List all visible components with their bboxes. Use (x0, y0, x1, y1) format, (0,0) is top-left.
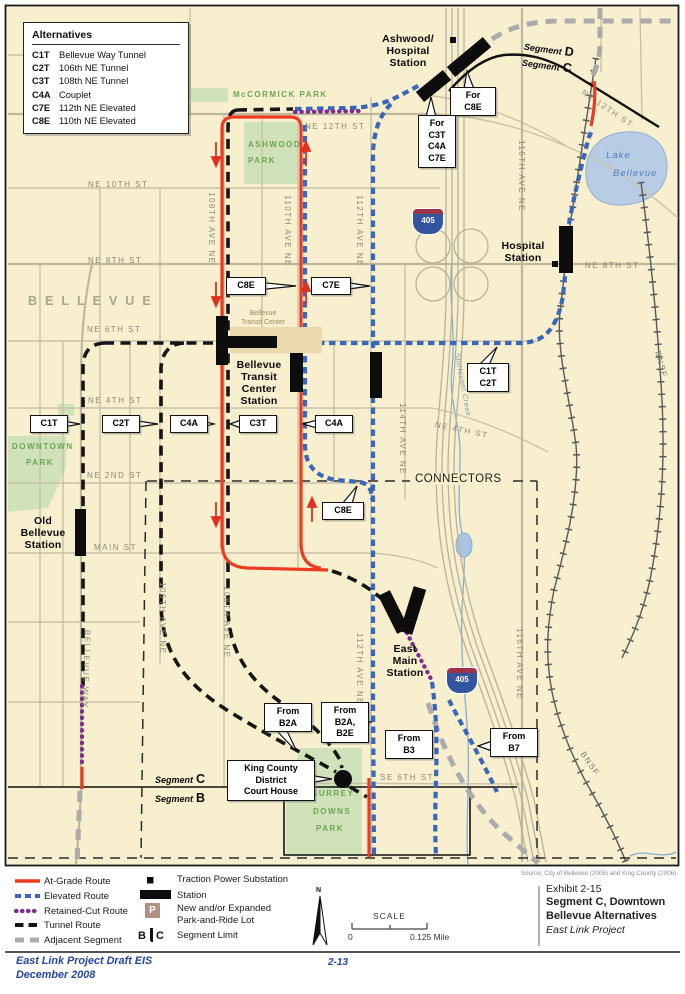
hospital-station-label: Hospital Station (494, 240, 552, 264)
park-and-ride-icon: P (145, 903, 160, 918)
callout-line: B7 (494, 743, 534, 755)
north-arrow (313, 896, 327, 945)
alt-code: C8E (32, 116, 59, 126)
label-line: East (382, 643, 428, 655)
alt-name: 110th NE Elevated (59, 116, 136, 126)
connectors-label: CONNECTORS (413, 473, 504, 485)
street-label-main: MAIN ST (94, 543, 137, 552)
footer-date: December 2008 (16, 969, 95, 981)
label-line: Ashwood/ (377, 33, 439, 45)
legend-park-ride-1: New and/or Expanded (177, 903, 271, 914)
legend-at-grade: At-Grade Route (44, 876, 111, 887)
callout-from-b2a-b2e: From B2A, B2E (321, 702, 369, 743)
street-label-ne8-west: NE 8TH ST (88, 256, 142, 265)
street-label-ne4-west: NE 4TH ST (88, 396, 142, 405)
label-line: Center (228, 383, 290, 395)
list-item: C2T106th NE Tunnel (32, 63, 180, 73)
legend-park-ride-2: Park-and-Ride Lot (177, 915, 254, 926)
street-label-ne12-west: NE 12TH ST (305, 122, 365, 131)
street-label-116th: 116TH AVE NE (517, 140, 526, 212)
tps-square-ashwood (450, 37, 456, 43)
exhibit-title-2: Bellevue Alternatives (546, 910, 657, 922)
callout-line: District (231, 775, 311, 787)
callout-courthouse: King County District Court House (227, 760, 315, 801)
label-line: Old (14, 515, 72, 527)
old-bellevue-station-label: Old Bellevue Station (14, 515, 72, 551)
street-label-ne10: NE 10TH ST (88, 180, 148, 189)
callout-line: B2A, (325, 717, 365, 729)
callout-c1t: C1T (30, 415, 68, 433)
callout-line: King County (231, 763, 311, 775)
legend-retained-cut: Retained-Cut Route (44, 906, 128, 917)
btc-station-label: Bellevue Transit Center Station (228, 359, 290, 407)
page-number: 2-13 (328, 957, 348, 968)
callout-line: From (325, 705, 365, 717)
segment-letter: C (196, 772, 205, 786)
list-item: C7E112th NE Elevated (32, 103, 180, 113)
label-line: Bellevue (14, 527, 72, 539)
surrey-downs-label3: PARK (316, 824, 344, 833)
callout-c2t: C2T (102, 415, 140, 433)
scale-label: SCALE (373, 911, 406, 921)
label-line: Station (382, 667, 428, 679)
segment-word: Segment (155, 794, 193, 804)
segment-b-label: SegmentB (155, 789, 205, 807)
alternatives-legend-box: Alternatives C1TBellevue Way Tunnel C2T1… (23, 22, 189, 134)
callout-line: C8E (454, 102, 492, 114)
alternatives-title: Alternatives (32, 29, 180, 41)
segment-letter: C (562, 60, 573, 75)
legend-elevated: Elevated Route (44, 891, 109, 902)
street-label-108th: 108TH AVE NE (207, 192, 216, 265)
lake-label2: Bellevue (613, 168, 657, 179)
list-item: C8E110th NE Elevated (32, 116, 180, 126)
footer-doc-title: East Link Project Draft EIS (16, 955, 152, 967)
street-label-112th-south: 112TH AVE NE (355, 633, 364, 705)
callout-c3t: C3T (239, 415, 277, 433)
label-line: Bellevue (228, 359, 290, 371)
hospital-station-bar (559, 226, 573, 273)
ashwood-hospital-station-label: Ashwood/ Hospital Station (377, 33, 439, 69)
surrey-downs-label: SURREY (312, 789, 354, 798)
scale-max: 0.125 Mile (410, 932, 449, 942)
ashwood-park-label: ASHWOOD (248, 140, 301, 149)
callout-c7e: C7E (311, 277, 351, 295)
callout-c8e-north: C8E (226, 277, 266, 295)
callout-c8e-south: C8E (322, 502, 364, 520)
scale-bar (352, 923, 427, 929)
alt-name: 112th NE Elevated (59, 103, 136, 113)
segment-c-bottom-label: SegmentC (155, 770, 205, 788)
legend-adjacent: Adjacent Segment (44, 935, 122, 946)
segment-limit-divider (150, 928, 152, 941)
callout-from-b2a: From B2A (264, 703, 312, 732)
segment-letter: B (196, 791, 205, 805)
callout-line: For (422, 118, 452, 130)
label-line: Transit (228, 371, 290, 383)
label-line: Station (377, 57, 439, 69)
btc-station-bar-108th (216, 316, 228, 365)
alt-code: C4A (32, 90, 59, 100)
alt-code: C2T (32, 63, 59, 73)
courthouse-dot (334, 770, 352, 788)
exhibit-page: Alternatives C1TBellevue Way Tunnel C2T1… (0, 0, 685, 994)
map-canvas (0, 0, 685, 994)
label-line: Hospital (494, 240, 552, 252)
list-item: C1TBellevue Way Tunnel (32, 50, 180, 60)
segment-word: Segment (155, 775, 193, 785)
callout-c1t-c2t: C1T C2T (467, 363, 509, 392)
east-main-station-label: East Main Station (382, 643, 428, 679)
callout-line: For (454, 90, 492, 102)
btc-small-label: Bellevue Transit Center (231, 310, 295, 328)
downtown-park-label: DOWNTOWN (12, 442, 74, 451)
surrey-downs-label2: DOWNS (313, 807, 351, 816)
callout-for-c8e: For C8E (450, 87, 496, 116)
segment-b-letter: B (138, 930, 146, 942)
alt-name: 108th NE Tunnel (59, 76, 128, 86)
i405-shield-south: 405 (447, 668, 477, 693)
street-label-116th-south: 116TH AVE NE (515, 628, 524, 700)
street-label-112th: 112TH AVE NE (355, 195, 364, 267)
alt-code: C3T (32, 76, 59, 86)
callout-c4a-west: C4A (170, 415, 208, 433)
callout-line: From (389, 733, 429, 745)
callout-line: Court House (231, 786, 311, 798)
callout-line: C2T (471, 378, 505, 390)
compass-n-label: N (316, 887, 321, 894)
label-line: Hospital (377, 45, 439, 57)
legend-tps: Traction Power Substation (177, 874, 288, 885)
alt-name: Bellevue Way Tunnel (59, 50, 146, 60)
segment-c-letter: C (156, 930, 164, 942)
downtown-park-label2: PARK (26, 458, 54, 467)
i405-shield-north: 405 (413, 209, 443, 234)
street-label-se6: SE 6TH ST (380, 773, 434, 782)
source-note: Source: City of Bellevue (2005) and King… (420, 870, 678, 877)
lake-label: Lake (606, 150, 631, 161)
street-label-ne2: NE 2ND ST (87, 471, 142, 480)
alt-name: 106th NE Tunnel (59, 63, 128, 73)
label-line: Station (228, 395, 290, 407)
callout-line: B2E (325, 728, 365, 740)
divider (32, 44, 180, 45)
callout-from-b3: From B3 (385, 730, 433, 759)
callout-c4a-east: C4A (315, 415, 353, 433)
callout-line: From (268, 706, 308, 718)
ashwood-park-label2: PARK (248, 156, 276, 165)
exhibit-number: Exhibit 2-15 (546, 883, 601, 895)
label-line: Transit Center (231, 319, 295, 328)
street-label-106th-south: 106TH AVE NE (158, 582, 167, 655)
callout-line: B2A (268, 718, 308, 730)
callout-line: C4A (422, 141, 452, 153)
callout-from-b7: From B7 (490, 728, 538, 757)
mccormick-park-label: McCORMICK PARK (233, 90, 328, 99)
btc-station-bar-110th (290, 347, 303, 392)
street-label-114th: 114TH AVE NE (398, 403, 407, 475)
list-item: C4ACouplet (32, 90, 180, 100)
alt-name: Couplet (59, 90, 91, 100)
exhibit-title-1: Segment C, Downtown (546, 896, 665, 908)
segment-letter: D (564, 44, 575, 59)
callout-for-c3t-c4a-c7e: For C3T C4A C7E (418, 115, 456, 168)
callout-line: C3T (422, 130, 452, 142)
legend-segment-limit: Segment Limit (177, 930, 238, 941)
callout-line: From (494, 731, 534, 743)
city-label-bellevue: BELLEVUE (28, 294, 159, 308)
exhibit-subtitle: East Link Project (546, 924, 625, 936)
label-line: Station (494, 252, 552, 264)
callout-line: C1T (471, 366, 505, 378)
alt-code: C1T (32, 50, 59, 60)
street-label-ne8-east: NE 8TH ST (585, 261, 639, 270)
label-line: Station (14, 539, 72, 551)
callout-line: C7E (422, 153, 452, 165)
legend-tunnel: Tunnel Route (44, 920, 101, 931)
label-line: Bellevue (231, 310, 295, 319)
callout-line: B3 (389, 745, 429, 757)
station-legend-swatch (140, 890, 171, 899)
btc-station-bar-112th (370, 352, 382, 398)
alt-code: C7E (32, 103, 59, 113)
segment-limit-icon: BC (138, 928, 164, 942)
scale-zero: 0 (348, 932, 353, 942)
list-item: C3T108th NE Tunnel (32, 76, 180, 86)
tps-legend-swatch (147, 877, 154, 884)
label-line: Main (382, 655, 428, 667)
street-label-ne6: NE 6TH ST (87, 325, 141, 334)
segment-word: Segment (521, 58, 560, 73)
tps-square-hospital (552, 261, 558, 267)
street-label-110th: 110TH AVE NE (283, 195, 292, 267)
legend-station: Station (177, 890, 207, 901)
old-bellevue-station-bar (75, 509, 86, 556)
street-label-108th-south: 108TH AVE NE (222, 586, 231, 659)
